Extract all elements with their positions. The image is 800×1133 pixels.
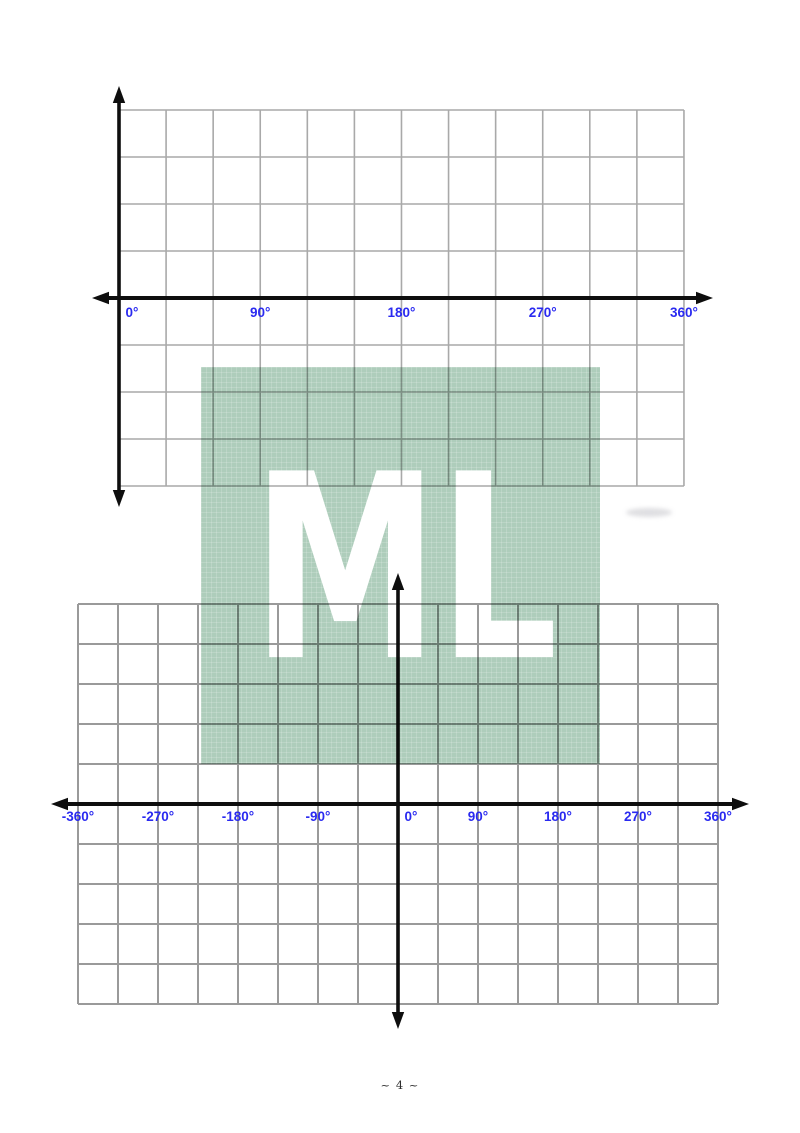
- watermark-text: ML: [252, 420, 558, 718]
- axis-arrowhead: [696, 292, 713, 304]
- worksheet-page: 0°90°180°270°360° -360°-270°-180°-90°0°9…: [0, 0, 800, 1133]
- top-axis-tick-label: 360°: [670, 305, 698, 321]
- bottom-axis-tick-label: 360°: [704, 809, 732, 825]
- bottom-axis-tick-label: 90°: [468, 809, 488, 825]
- bottom-axis-tick-label: 270°: [624, 809, 652, 825]
- top-axis-tick-label: 180°: [388, 305, 416, 321]
- bottom-axis-tick-label: 180°: [544, 809, 572, 825]
- bottom-axis-tick-label: -270°: [142, 809, 174, 825]
- bottom-axis-tick-label: 0°: [405, 809, 418, 825]
- page-number: ~ 4 ~: [0, 1078, 800, 1092]
- smudge-artifact: [626, 508, 672, 517]
- axis-arrowhead: [113, 490, 125, 507]
- axis-arrowhead: [92, 292, 109, 304]
- bottom-axis-tick-label: -360°: [62, 809, 94, 825]
- top-axis-tick-label: 90°: [250, 305, 270, 321]
- bottom-axis-tick-label: -180°: [222, 809, 254, 825]
- watermark: ML: [201, 367, 600, 764]
- axis-arrowhead: [113, 86, 125, 103]
- axis-arrowhead: [732, 798, 749, 810]
- bottom-axis-tick-label: -90°: [306, 809, 331, 825]
- top-axis-tick-label: 0°: [126, 305, 139, 321]
- axis-arrowhead: [392, 1012, 404, 1029]
- watermark-letters-svg: ML: [201, 367, 600, 764]
- top-axis-tick-label: 270°: [529, 305, 557, 321]
